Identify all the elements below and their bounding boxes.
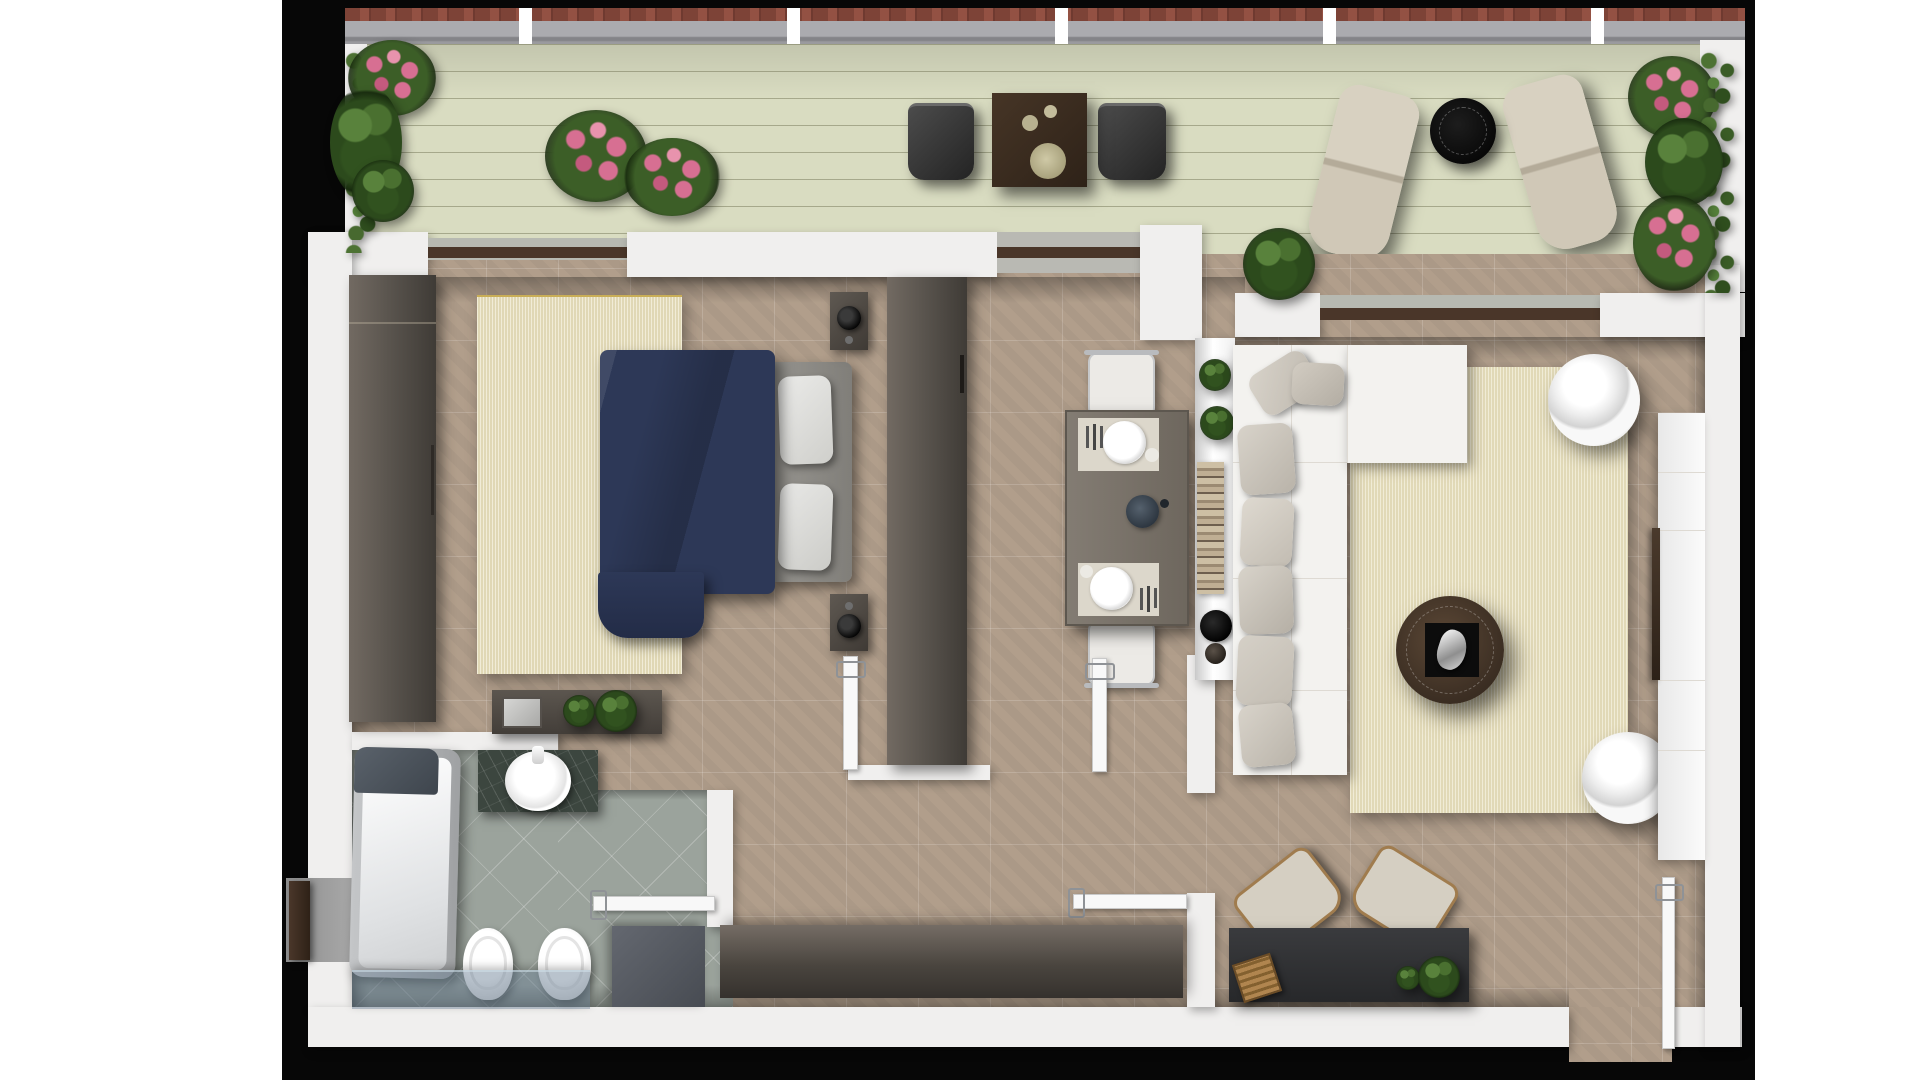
- bathroom-door: [593, 896, 715, 911]
- black-bowl: [1200, 610, 1232, 642]
- coffee-table: [1396, 596, 1504, 704]
- kitchen-tall-unit: [887, 277, 967, 765]
- table-lamp-icon: [837, 306, 861, 330]
- sofa-seam: [1347, 345, 1348, 463]
- tv-unit: [1658, 413, 1705, 860]
- table-lamp-icon: [837, 614, 861, 638]
- terrace-chair-right: [1098, 103, 1166, 180]
- dresser-plant-icon: [563, 695, 595, 727]
- cup: [1145, 448, 1159, 462]
- green-bush-icon: [352, 160, 414, 222]
- side-table-ring: [1439, 107, 1487, 155]
- tv-unit-shelf: [1658, 680, 1705, 681]
- desk-plant-icon: [1396, 966, 1420, 990]
- small-plate: [1044, 105, 1057, 118]
- kitchen-slider-sill: [997, 247, 1140, 258]
- tv-panel: [1652, 528, 1660, 680]
- palm-plant-icon: [1243, 228, 1315, 300]
- small-bowl: [1160, 499, 1169, 508]
- cutlery-icon: [1086, 426, 1089, 448]
- palm-plant-icon: [1645, 118, 1723, 206]
- terrace-dining-table: [992, 93, 1087, 187]
- wall-jog-kitchen-living: [1140, 225, 1202, 340]
- bed-duvet: [600, 350, 775, 594]
- plate: [1030, 143, 1066, 179]
- black-side-table: [1430, 98, 1496, 164]
- sink-faucet: [532, 746, 544, 764]
- cutlery-icon: [1100, 426, 1103, 448]
- sofa-pillow: [1239, 497, 1294, 568]
- bedroom-wardrobe: [349, 275, 436, 722]
- terrace-chair-left: [908, 103, 974, 180]
- desk-plant-icon: [1418, 956, 1460, 998]
- dresser-plant-icon: [595, 690, 637, 732]
- cutlery-icon: [1140, 588, 1143, 610]
- hall-sideboard: [720, 925, 1183, 998]
- living-slider-sill: [1320, 308, 1600, 320]
- bed-pillow: [777, 375, 833, 465]
- lamp-stem: [845, 602, 853, 610]
- terrace-railing-cap: [345, 8, 1745, 21]
- counter-plant-icon: [1199, 359, 1231, 391]
- floor-plan-screenshot: [0, 0, 1920, 1080]
- counter-plant-icon: [1200, 406, 1234, 440]
- wall-bedroom-south: [848, 765, 990, 780]
- hall-living-door: [1073, 894, 1187, 909]
- plate: [1090, 567, 1133, 610]
- wardrobe-seam: [349, 322, 436, 324]
- wall-right: [1705, 265, 1740, 1047]
- book-stack: [1197, 462, 1224, 594]
- doorway-threshold-tiles: [1569, 1007, 1672, 1062]
- hall-living-door-handle: [1068, 888, 1085, 918]
- tv-unit-shelf: [1658, 472, 1705, 473]
- sofa-pillow: [1291, 362, 1345, 407]
- sofa-pillow: [1238, 565, 1294, 635]
- tv-unit-shelf: [1658, 750, 1705, 751]
- sofa-pillow: [1237, 702, 1296, 768]
- small-plate: [1022, 115, 1038, 131]
- bedroom-slider-sill: [428, 247, 627, 258]
- sofa-chaise: [1347, 345, 1467, 463]
- flower-bush-icon: [1633, 195, 1715, 291]
- bathroom-door-handle: [590, 890, 607, 920]
- wall-bottom: [308, 1007, 1569, 1047]
- plate: [1103, 421, 1146, 464]
- chair-chrome-bar: [1084, 350, 1159, 355]
- dark-vase: [1205, 643, 1226, 664]
- unit-handle: [960, 355, 964, 393]
- living-exit-door: [1662, 877, 1675, 1049]
- bathtub-faucet-deck: [354, 747, 439, 795]
- bathtub: [349, 747, 461, 980]
- cutlery-icon: [1093, 424, 1096, 450]
- sofa-pillow: [1237, 422, 1297, 496]
- wall-top-center: [627, 232, 997, 277]
- bathroom-cabinet: [612, 926, 705, 1007]
- dining-table: [1065, 410, 1189, 626]
- lamp-stem: [845, 336, 853, 344]
- swivel-chair-north: [1548, 354, 1640, 446]
- center-bowl: [1126, 495, 1159, 528]
- bedroom-door-handle: [836, 661, 866, 678]
- photo-frame: [502, 697, 542, 728]
- living-exit-door-handle: [1655, 884, 1684, 901]
- entry-door: [289, 881, 310, 960]
- cutlery-icon: [1147, 586, 1150, 612]
- flower-bush-icon: [624, 138, 720, 216]
- wardrobe-handle: [431, 445, 434, 515]
- dining-chair-north: [1088, 352, 1155, 418]
- cup: [1080, 565, 1093, 578]
- shower-glass-screen: [352, 970, 590, 1009]
- bed-pillow: [778, 483, 834, 571]
- kitchen-door-handle: [1085, 663, 1115, 680]
- wall-hall-living-lower: [1187, 893, 1215, 1007]
- tv-unit-shelf: [1658, 530, 1705, 531]
- cutlery-icon: [1154, 588, 1157, 608]
- bed-duvet-fold: [598, 572, 704, 638]
- sofa-pillow: [1235, 635, 1295, 708]
